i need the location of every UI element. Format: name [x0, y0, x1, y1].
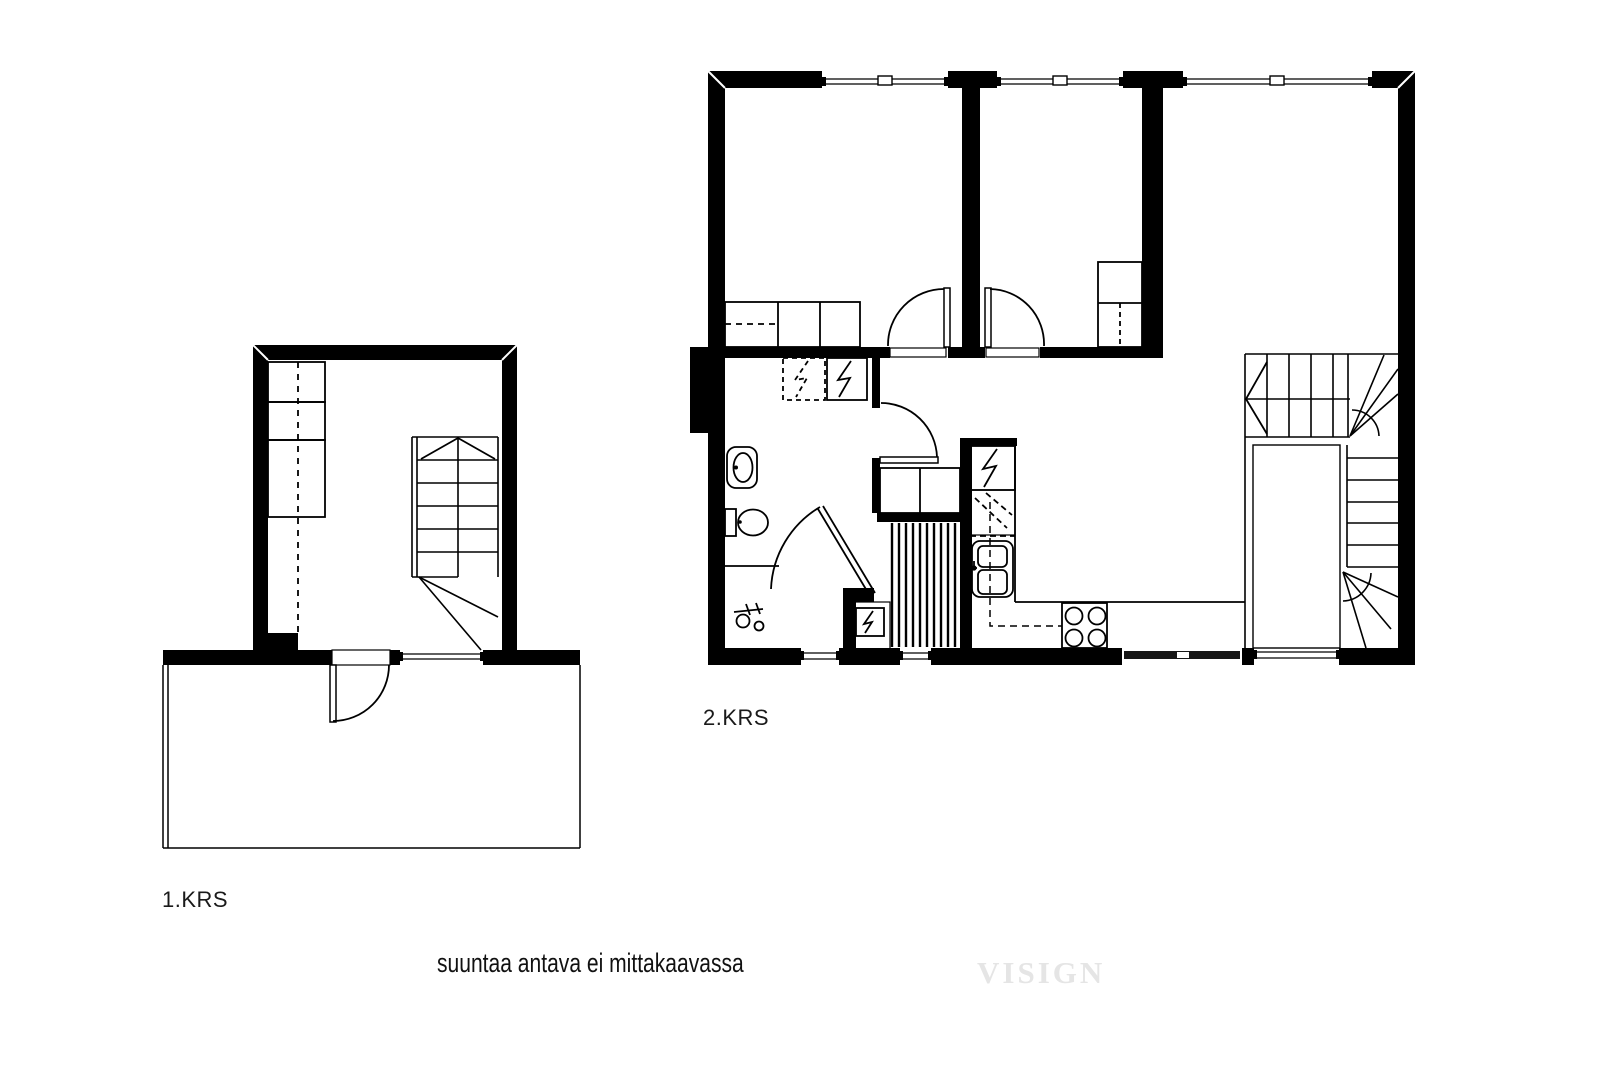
patio-door-icon [1122, 649, 1242, 663]
interior-walls-2krs [725, 88, 1163, 650]
exterior-walls-1krs [163, 345, 580, 665]
disclaimer-note: suuntaa antava ei mittakaavassa [437, 948, 744, 979]
kitchen-sink-icon [969, 541, 1013, 597]
window-icon [801, 651, 839, 660]
upper-cabinet-line [990, 502, 1062, 626]
sauna-heater-icon [852, 602, 890, 650]
hall-closet [880, 468, 960, 513]
sauna [771, 506, 955, 650]
window-icon [1254, 650, 1339, 659]
window-icon [997, 71, 1123, 88]
bathroom-door [880, 403, 938, 463]
bedroom1-wardrobe [725, 302, 860, 347]
watermark-logo: VISIGN [977, 955, 1105, 991]
wardrobe-1krs [268, 362, 325, 633]
kitchen [969, 446, 1245, 648]
washer-reservation-icon [783, 358, 825, 400]
floor-2krs [690, 71, 1415, 665]
entrance-door-1krs [330, 650, 390, 722]
stove-icon [1062, 603, 1107, 648]
stair-void [1253, 445, 1340, 648]
window-icon [900, 651, 931, 660]
exterior-walls-2krs [690, 71, 1415, 665]
floorplan-drawing [0, 0, 1600, 1067]
bedroom1-door [888, 288, 950, 347]
window-icon [1183, 71, 1372, 88]
appliance-reservation-icon [970, 490, 1015, 536]
bedroom2-wardrobe [1098, 262, 1142, 347]
staircase-1krs [412, 437, 498, 650]
floorplan-canvas: 2.KRS 1.KRS suuntaa antava ei mittakaava… [0, 0, 1600, 1067]
sauna-benches [892, 523, 955, 647]
window-icon [400, 652, 483, 661]
floor-label-1krs: 1.KRS [162, 887, 228, 913]
washbasin-icon [727, 447, 757, 488]
shower-mixer-icon [734, 603, 764, 631]
sauna-door [771, 506, 875, 596]
door-threshold [986, 348, 1039, 357]
fridge-icon [970, 446, 1015, 490]
washing-machine-icon [827, 358, 867, 400]
door-threshold [890, 348, 946, 357]
floor-label-2krs: 2.KRS [703, 705, 769, 731]
floor-1krs [163, 345, 580, 848]
terrace [163, 665, 580, 848]
stair-direction-arrow [1246, 362, 1267, 434]
windows-top-2krs [822, 71, 1372, 88]
toilet-icon [725, 509, 768, 536]
staircase-2krs [1245, 354, 1398, 648]
bedroom2-door [985, 288, 1044, 347]
window-icon [822, 71, 948, 88]
